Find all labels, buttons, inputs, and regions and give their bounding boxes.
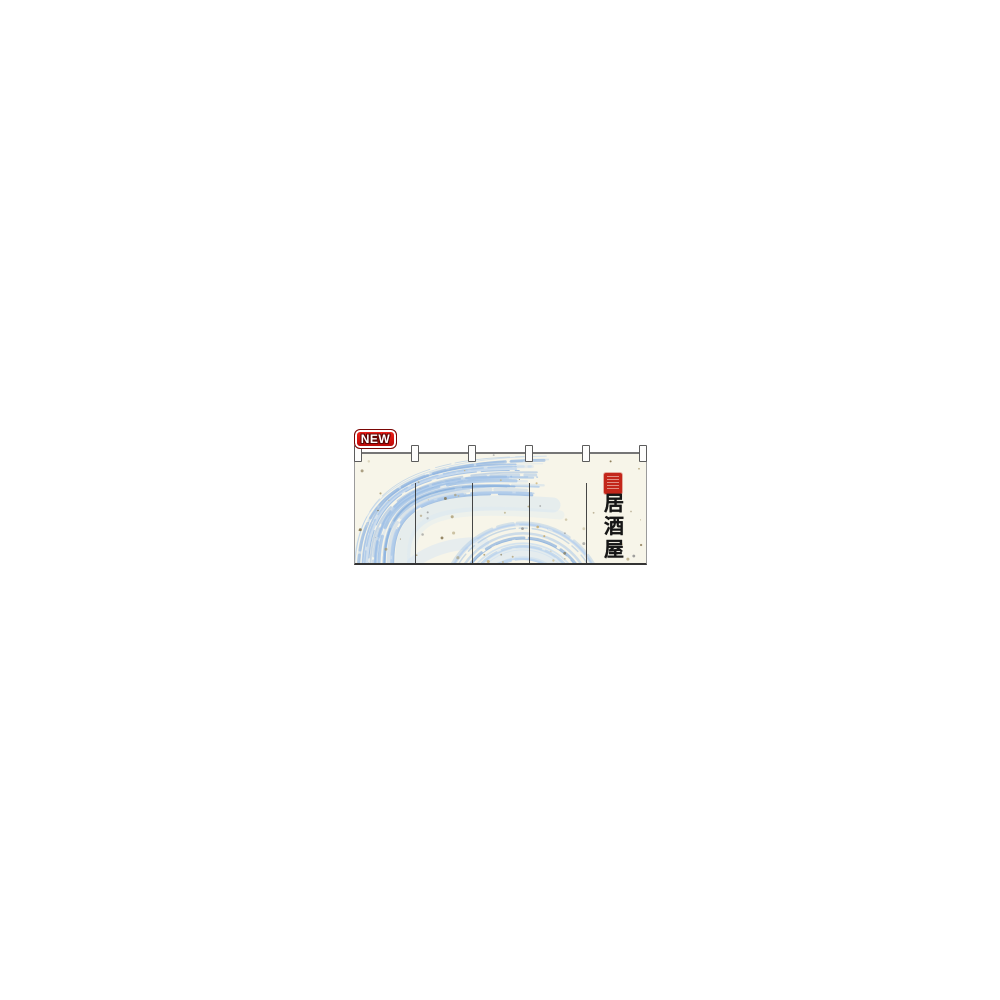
noren-title-char: 屋 [604,540,624,561]
product-image: NEW 居酒屋 [0,0,1000,1000]
noren-title: 居酒屋 [600,494,628,561]
noren-title-char: 酒 [604,517,624,538]
panel-slit [529,483,530,563]
noren-title-char: 居 [604,494,624,515]
hanging-tab [411,445,419,462]
new-badge: NEW [354,429,397,449]
new-badge-label: NEW [361,432,391,446]
panel-slit [472,483,473,563]
noren-curtain: 居酒屋 [354,452,647,565]
panel-slit [415,483,416,563]
hanging-tab [582,445,590,462]
hanging-tab [525,445,533,462]
hanging-tab [639,445,647,462]
hanging-tab [468,445,476,462]
panel-slit [586,483,587,563]
seal-characters [607,476,619,491]
hanko-seal-icon [604,473,622,494]
